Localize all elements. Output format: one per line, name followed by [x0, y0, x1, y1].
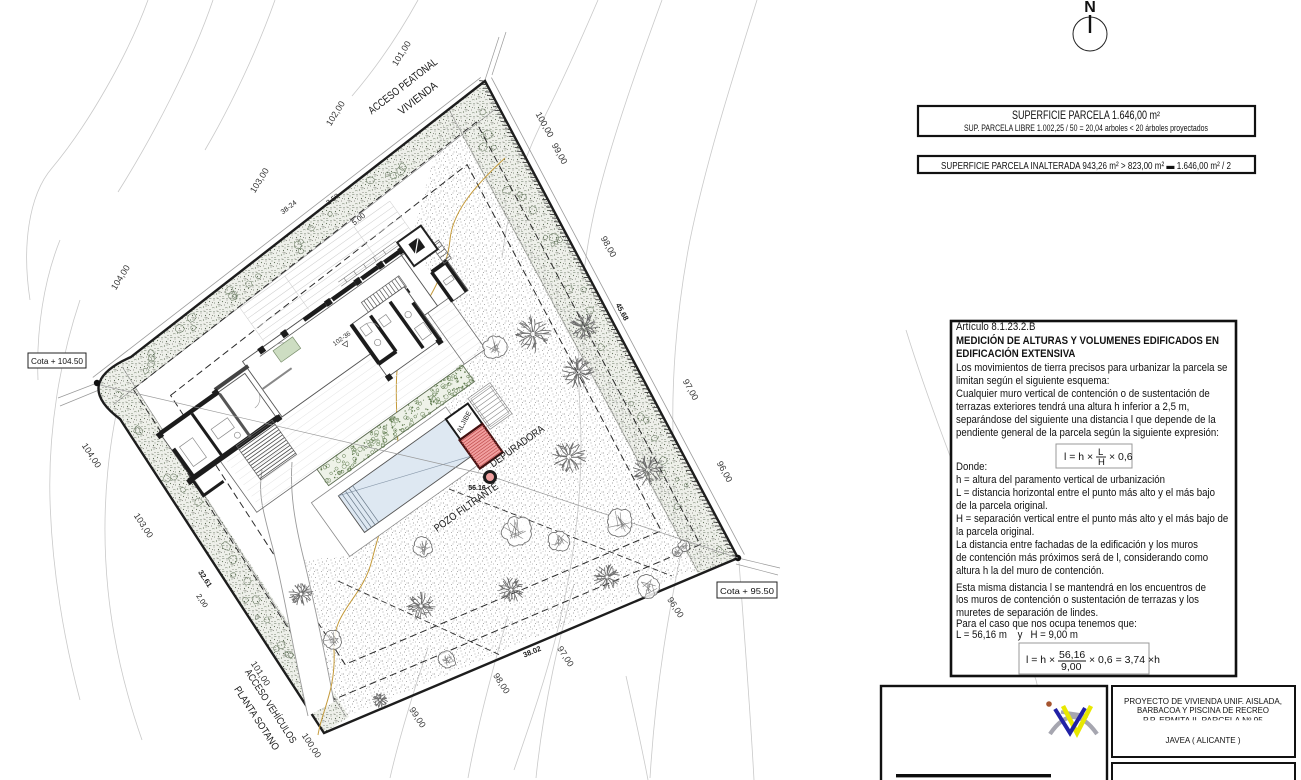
svg-text:de la parcela original.: de la parcela original.	[956, 499, 1048, 512]
svg-text:Los movimientos de tierra prec: Los movimientos de tierra precisos para …	[956, 361, 1228, 374]
svg-text:Cualquier muro vertical de con: Cualquier muro vertical de contención o …	[956, 387, 1210, 400]
svg-text:104,00: 104,00	[109, 263, 132, 292]
svg-text:56,16: 56,16	[1059, 649, 1085, 661]
svg-text:× 0,6 = 3,74 ×h: × 0,6 = 3,74 ×h	[1089, 654, 1160, 666]
svg-text:SUP. PARCELA LIBRE 1.002,25 /: SUP. PARCELA LIBRE 1.002,25 / 50 = 20,04…	[964, 123, 1208, 134]
svg-text:100,00: 100,00	[534, 110, 556, 139]
svg-text:terrazas exteriores tendrá una: terrazas exteriores tendrá una altura h …	[956, 400, 1189, 413]
svg-text:l = h ×: l = h ×	[1026, 654, 1055, 666]
svg-text:103,00: 103,00	[132, 511, 155, 540]
svg-text:98,00: 98,00	[599, 234, 619, 259]
svg-text:32.61: 32.61	[196, 568, 214, 589]
svg-text:JAVEA ( ALICANTE ): JAVEA ( ALICANTE )	[1166, 736, 1241, 745]
svg-text:SUPERFICIE PARCELA 1.646,00 m²: SUPERFICIE PARCELA 1.646,00 m²	[1012, 110, 1160, 122]
svg-text:98,00: 98,00	[491, 671, 512, 695]
svg-text:2,00: 2,00	[194, 592, 210, 609]
svg-text:100,00: 100,00	[300, 731, 323, 760]
svg-text:La distancia entre fachadas de: La distancia entre fachadas de la edific…	[956, 538, 1198, 551]
svg-text:97,00: 97,00	[555, 644, 576, 668]
svg-text:38-24: 38-24	[280, 200, 299, 217]
svg-text:L = distancia horizontal entre: L = distancia horizontal entre el punto …	[956, 486, 1215, 499]
svg-text:N: N	[1084, 0, 1096, 16]
svg-text:99,00: 99,00	[550, 141, 570, 166]
svg-text:MEDICIÓN DE ALTURAS Y VOLUMENE: MEDICIÓN DE ALTURAS Y VOLUMENES EDIFICAD…	[956, 333, 1219, 347]
svg-text:l = h ×: l = h ×	[1064, 451, 1093, 463]
svg-text:PROYECTO DE VIVIENDA UNIF. AIS: PROYECTO DE VIVIENDA UNIF. AISLADA,	[1124, 697, 1282, 706]
svg-text:103,00: 103,00	[248, 166, 271, 195]
svg-text:la parcela original.: la parcela original.	[956, 525, 1034, 538]
svg-text:SUPERFICIE PARCELA INALTERADA: SUPERFICIE PARCELA INALTERADA 943,26 m² …	[941, 160, 1231, 172]
svg-text:99,00: 99,00	[407, 705, 428, 729]
svg-text:EDIFICACIÓN EXTENSIVA: EDIFICACIÓN EXTENSIVA	[956, 346, 1076, 360]
svg-text:96,00: 96,00	[715, 459, 735, 484]
svg-text:de contención más próximos ser: de contención más próximos será de l, co…	[956, 551, 1208, 564]
svg-text:BARBACOA Y PISCINA DE RECREO: BARBACOA Y PISCINA DE RECREO	[1137, 706, 1269, 715]
svg-text:97,00: 97,00	[681, 377, 701, 402]
svg-text:L = 56,16 m y H = 9,00 m: L = 56,16 m y H = 9,00 m	[956, 628, 1078, 641]
svg-text:45.68: 45.68	[614, 301, 631, 322]
svg-text:96,00: 96,00	[665, 595, 686, 619]
svg-text:pendiente general de la parcel: pendiente general de la parcela según la…	[956, 426, 1219, 439]
svg-text:101,00: 101,00	[390, 39, 413, 68]
svg-text:× 0,6: × 0,6	[1109, 451, 1133, 463]
svg-text:separándose del siguiente una: separándose del siguiente una distancia …	[956, 413, 1216, 426]
svg-text:h = altura del paramento verti: h = altura del paramento vertical de urb…	[956, 473, 1165, 486]
svg-text:los muros de contención o sust: los muros de contención o sustentación d…	[956, 593, 1199, 606]
svg-text:H: H	[1098, 457, 1105, 468]
svg-text:102,00: 102,00	[324, 99, 347, 128]
svg-text:Cota + 104.50: Cota + 104.50	[31, 357, 84, 366]
svg-text:Artículo 8.1.23.2.B: Artículo 8.1.23.2.B	[956, 320, 1035, 333]
svg-text:38.02: 38.02	[522, 644, 543, 660]
svg-text:H = separación vertical entre: H = separación vertical entre el punto m…	[956, 512, 1228, 525]
svg-text:limitan según el siguiente esq: limitan según el siguiente esquema:	[956, 374, 1109, 387]
svg-text:Donde:: Donde:	[956, 460, 987, 473]
svg-text:altura h la del muro de conten: altura h la del muro de contención.	[956, 564, 1104, 577]
svg-text:9,00: 9,00	[1061, 661, 1082, 673]
svg-text:Cota + 95.50: Cota + 95.50	[720, 586, 774, 596]
svg-text:104,00: 104,00	[80, 441, 103, 470]
